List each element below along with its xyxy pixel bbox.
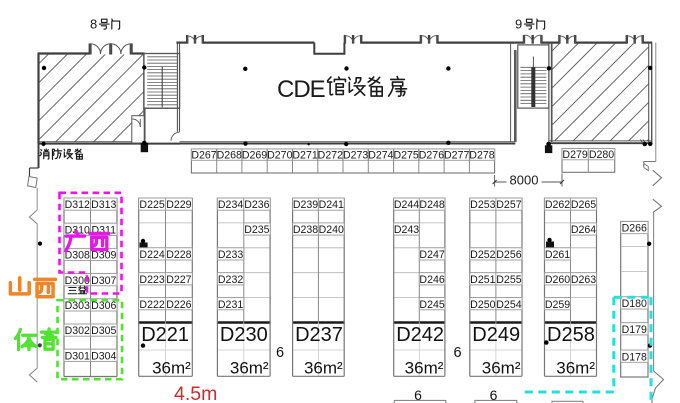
- svg-text:D246: D246: [419, 274, 444, 286]
- svg-text:36m²: 36m²: [152, 359, 191, 378]
- svg-text:D179: D179: [622, 324, 647, 336]
- svg-text:D304: D304: [91, 350, 116, 362]
- svg-text:D313: D313: [91, 199, 116, 211]
- svg-text:D280: D280: [589, 149, 614, 161]
- svg-text:36m²: 36m²: [304, 359, 343, 378]
- svg-text:D222: D222: [139, 299, 164, 311]
- svg-text:D237: D237: [295, 324, 343, 346]
- svg-text:D236: D236: [244, 199, 269, 211]
- svg-text:D223: D223: [139, 274, 164, 286]
- svg-text:D242: D242: [396, 324, 444, 346]
- svg-text:D261: D261: [545, 249, 570, 261]
- svg-text:D275: D275: [393, 150, 418, 162]
- svg-text:D276: D276: [419, 150, 444, 162]
- svg-text:4.5m: 4.5m: [174, 383, 217, 403]
- svg-text:D258: D258: [547, 324, 595, 346]
- svg-text:D225: D225: [139, 199, 164, 211]
- svg-text:D224: D224: [139, 249, 164, 261]
- svg-text:D268: D268: [217, 150, 242, 162]
- svg-text:D265: D265: [571, 199, 596, 211]
- svg-text:D260: D260: [545, 274, 570, 286]
- svg-text:D264: D264: [571, 224, 596, 236]
- svg-text:D247: D247: [419, 249, 444, 261]
- svg-text:D307: D307: [91, 275, 116, 287]
- svg-text:D277: D277: [444, 150, 469, 162]
- svg-text:D303: D303: [65, 300, 90, 312]
- svg-text:D248: D248: [419, 199, 444, 211]
- svg-text:D253: D253: [470, 199, 495, 211]
- svg-text:D231: D231: [218, 299, 243, 311]
- svg-text:D221: D221: [141, 324, 189, 346]
- svg-text:D252: D252: [470, 249, 495, 261]
- svg-text:D279: D279: [562, 149, 587, 161]
- svg-text:D278: D278: [469, 150, 494, 162]
- svg-text:D229: D229: [166, 199, 191, 211]
- svg-text:D244: D244: [394, 199, 419, 211]
- svg-text:D305: D305: [91, 325, 116, 337]
- svg-text:D274: D274: [368, 150, 393, 162]
- svg-text:D228: D228: [166, 249, 191, 261]
- svg-text:D251: D251: [470, 274, 495, 286]
- svg-text:D235: D235: [244, 224, 269, 236]
- svg-text:36m²: 36m²: [556, 359, 595, 378]
- svg-text:D180: D180: [622, 298, 647, 310]
- svg-text:D273: D273: [343, 150, 368, 162]
- svg-text:D232: D232: [218, 274, 243, 286]
- svg-text:D308: D308: [65, 250, 90, 262]
- svg-text:8: 8: [90, 17, 97, 32]
- svg-text:D259: D259: [545, 299, 570, 311]
- svg-text:D239: D239: [293, 199, 318, 211]
- svg-text:D254: D254: [496, 299, 521, 311]
- svg-text:D243: D243: [394, 224, 419, 236]
- svg-text:D255: D255: [496, 274, 521, 286]
- svg-text:D306: D306: [91, 300, 116, 312]
- svg-text:9: 9: [515, 17, 522, 32]
- svg-text:D249: D249: [472, 324, 520, 346]
- svg-text:D266: D266: [622, 223, 647, 235]
- svg-text:D263: D263: [571, 274, 596, 286]
- svg-text:D269: D269: [242, 150, 267, 162]
- svg-text:D257: D257: [496, 199, 521, 211]
- svg-text:D267: D267: [191, 150, 216, 162]
- svg-text:D270: D270: [267, 150, 292, 162]
- svg-text:D226: D226: [166, 299, 191, 311]
- svg-text:D230: D230: [220, 324, 268, 346]
- svg-text:D240: D240: [319, 224, 344, 236]
- svg-text:D233: D233: [218, 249, 243, 261]
- svg-text:6: 6: [454, 345, 462, 361]
- svg-text:D227: D227: [166, 274, 191, 286]
- svg-text:D238: D238: [293, 224, 318, 236]
- svg-text:D178: D178: [622, 351, 647, 363]
- svg-text:D245: D245: [419, 299, 444, 311]
- svg-text:D312: D312: [65, 199, 90, 211]
- svg-text:D302: D302: [65, 325, 90, 337]
- svg-text:D301: D301: [65, 350, 90, 362]
- svg-text:36m²: 36m²: [405, 359, 444, 378]
- svg-text:D256: D256: [496, 249, 521, 261]
- svg-text:D272: D272: [318, 150, 343, 162]
- svg-text:36m²: 36m²: [230, 359, 269, 378]
- svg-text:CDE: CDE: [277, 76, 325, 103]
- svg-text:D262: D262: [545, 199, 570, 211]
- svg-text:36m²: 36m²: [482, 359, 521, 378]
- svg-text:6: 6: [276, 345, 284, 361]
- svg-text:D250: D250: [470, 299, 495, 311]
- svg-text:D271: D271: [292, 150, 317, 162]
- svg-text:8000: 8000: [510, 173, 539, 188]
- svg-text:D241: D241: [319, 199, 344, 211]
- svg-text:D309: D309: [91, 250, 116, 262]
- svg-text:D234: D234: [218, 199, 243, 211]
